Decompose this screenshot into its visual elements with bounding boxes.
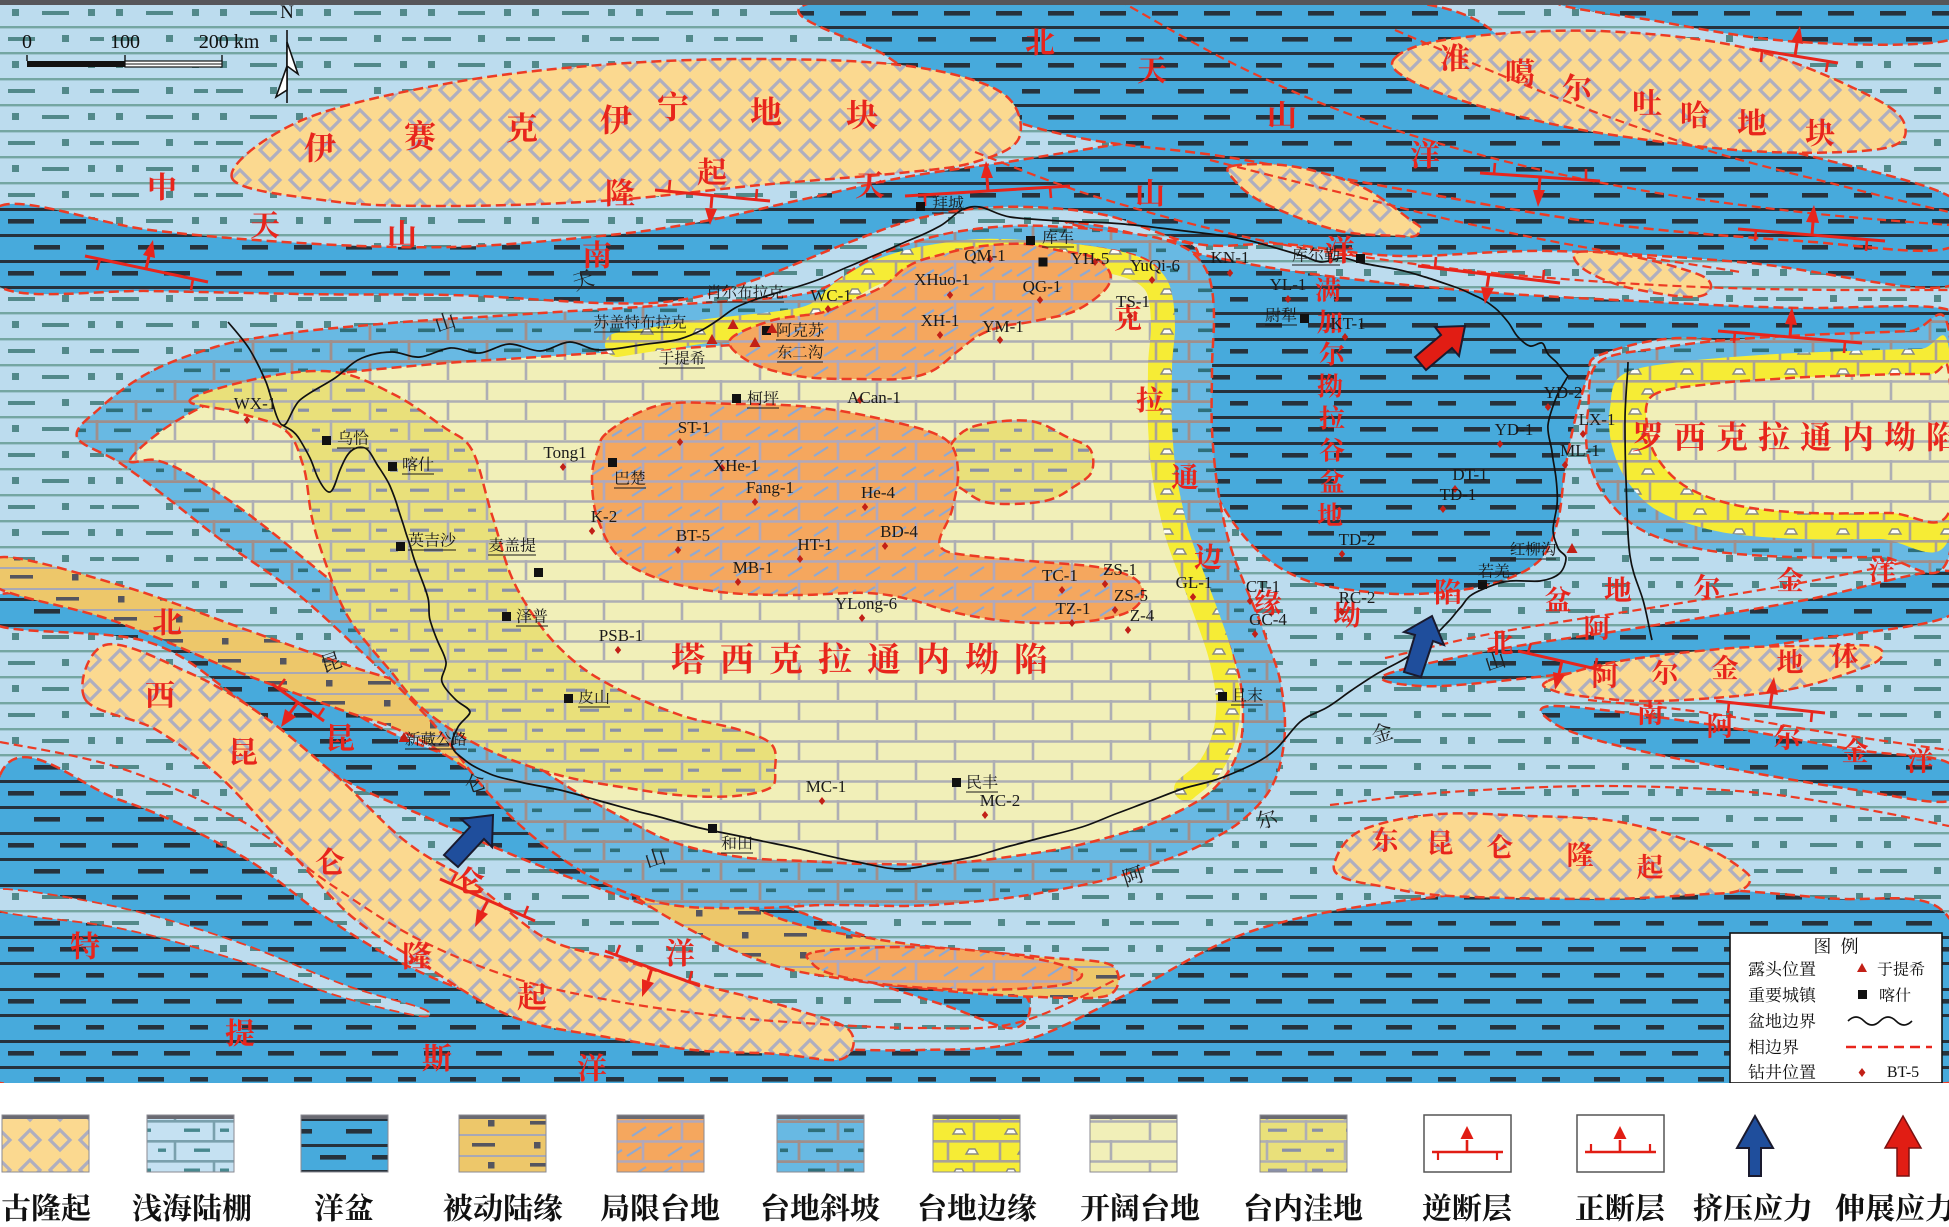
svg-text:WX-1: WX-1 <box>234 394 276 413</box>
svg-text:LX-1: LX-1 <box>1579 410 1616 429</box>
svg-text:ML-1: ML-1 <box>1560 441 1600 460</box>
svg-text:ACan-1: ACan-1 <box>847 388 901 407</box>
svg-text:CT-1: CT-1 <box>1246 577 1280 596</box>
svg-text:K-2: K-2 <box>591 507 617 526</box>
svg-text:TZ-1: TZ-1 <box>1056 599 1091 618</box>
svg-text:YM-1: YM-1 <box>982 317 1024 336</box>
svg-text:200 km: 200 km <box>199 31 260 53</box>
svg-text:KN-1: KN-1 <box>1211 248 1250 267</box>
svg-text:XHe-1: XHe-1 <box>713 456 759 475</box>
svg-text:YH-5: YH-5 <box>1071 249 1110 268</box>
svg-text:BT-5: BT-5 <box>1887 1064 1919 1081</box>
svg-text:ZS-1: ZS-1 <box>1103 560 1137 579</box>
svg-text:XH-1: XH-1 <box>921 311 960 330</box>
svg-text:MC-2: MC-2 <box>980 791 1021 810</box>
svg-text:Fang-1: Fang-1 <box>746 478 794 497</box>
svg-text:YD-1: YD-1 <box>1495 420 1534 439</box>
svg-text:Tong1: Tong1 <box>543 443 586 462</box>
svg-text:QG-1: QG-1 <box>1023 277 1062 296</box>
svg-text:BD-4: BD-4 <box>880 522 918 541</box>
svg-text:TC-1: TC-1 <box>1042 566 1078 585</box>
svg-text:DT-1: DT-1 <box>1452 465 1487 484</box>
svg-text:TD-2: TD-2 <box>1339 530 1376 549</box>
svg-text:He-4: He-4 <box>861 483 895 502</box>
svg-text:ZS-5: ZS-5 <box>1114 586 1148 605</box>
svg-text:GC-4: GC-4 <box>1249 610 1287 629</box>
svg-text:KT-1: KT-1 <box>1330 314 1365 333</box>
svg-text:MC-1: MC-1 <box>806 777 847 796</box>
svg-text:TS-1: TS-1 <box>1116 292 1150 311</box>
svg-text:YD-2: YD-2 <box>1544 383 1583 402</box>
svg-text:MB-1: MB-1 <box>733 558 774 577</box>
svg-text:N: N <box>280 2 294 23</box>
svg-text:PSB-1: PSB-1 <box>599 626 643 645</box>
svg-text:HT-1: HT-1 <box>797 535 832 554</box>
svg-text:100: 100 <box>110 31 140 53</box>
svg-text:XHuo-1: XHuo-1 <box>914 270 970 289</box>
svg-text:RC-2: RC-2 <box>1339 588 1376 607</box>
svg-text:GL-1: GL-1 <box>1176 573 1213 592</box>
svg-text:0: 0 <box>22 31 32 53</box>
svg-text:WC-1: WC-1 <box>810 286 852 305</box>
svg-text:ST-1: ST-1 <box>678 418 710 437</box>
svg-text:YLong-6: YLong-6 <box>835 594 897 613</box>
svg-text:TD-1: TD-1 <box>1440 485 1477 504</box>
svg-text:YuQi-6: YuQi-6 <box>1130 256 1180 275</box>
svg-text:YL-1: YL-1 <box>1270 275 1307 294</box>
svg-text:Z-4: Z-4 <box>1130 606 1155 625</box>
svg-text:QM-1: QM-1 <box>964 246 1006 265</box>
svg-text:BT-5: BT-5 <box>676 526 710 545</box>
